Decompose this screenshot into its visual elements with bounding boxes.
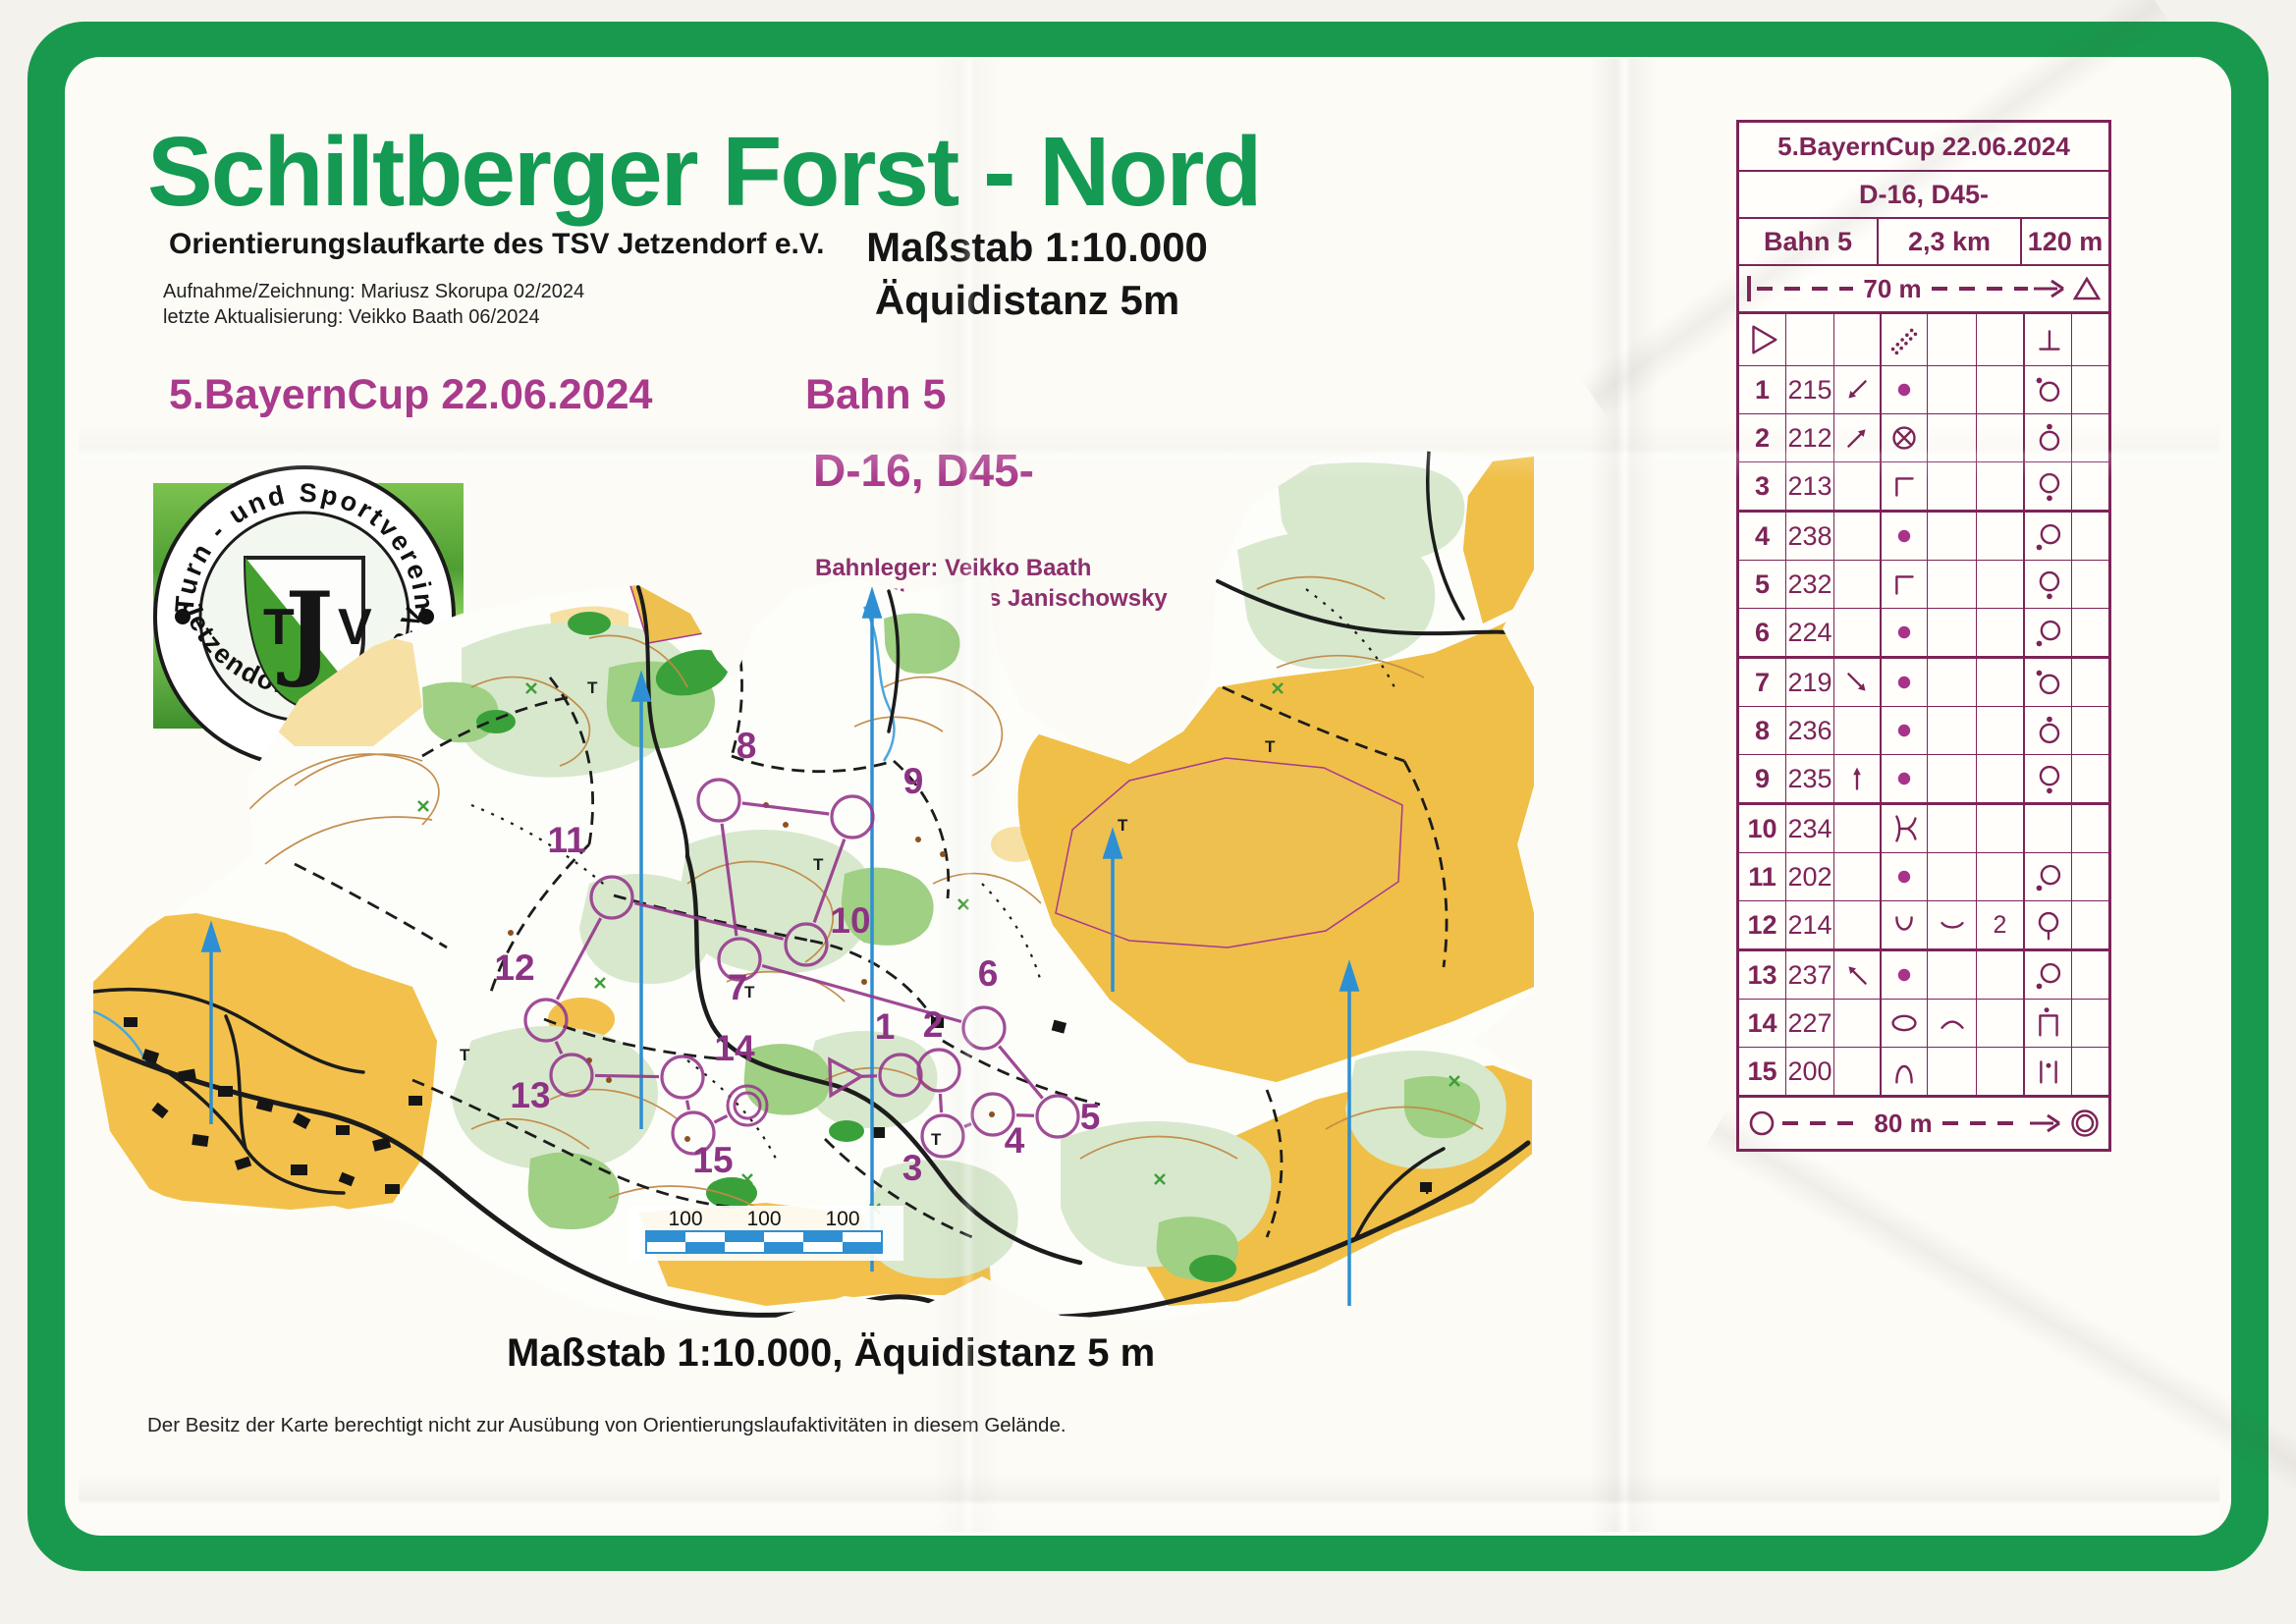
- scale-bar-cell: [685, 1231, 725, 1242]
- sheet-cell: [1834, 805, 1882, 852]
- arrow-n-icon: [1837, 759, 1877, 798]
- control-number: 6: [1755, 618, 1770, 648]
- control-number-label: 10: [830, 900, 870, 941]
- svg-text:T: T: [1265, 737, 1276, 756]
- sheet-cell: [1882, 853, 1928, 900]
- arrow-sw-icon: [1837, 370, 1877, 409]
- sheet-cell: [1977, 805, 2025, 852]
- dot-icon: [1885, 857, 1924, 896]
- scale-bar-cell: [685, 1242, 725, 1253]
- control-code: 213: [1787, 471, 1831, 502]
- control-code: 234: [1787, 814, 1831, 844]
- sheet-cell: [1977, 659, 2025, 706]
- control-description-sheet: 5.BayernCup 22.06.2024 D-16, D45- Bahn 5…: [1736, 120, 2111, 1152]
- control-code: 212: [1787, 423, 1831, 454]
- between-icon: [2029, 1052, 2068, 1091]
- scale-line1: Maßstab 1:10.000: [860, 224, 1214, 271]
- scale-bar-cell: [725, 1242, 764, 1253]
- sheet-cell: 213: [1786, 462, 1834, 510]
- control-number: 12: [1747, 910, 1777, 941]
- scale-bar-cell: [646, 1242, 685, 1253]
- finish-distance-row: 80 m: [1739, 1098, 2108, 1149]
- finish-distance-label: 80 m: [1870, 1109, 1936, 1139]
- control-rows: 1215221232134238523262247219823692351023…: [1739, 314, 2108, 1098]
- sheet-cell: [1928, 1000, 1977, 1047]
- control-row: 9235: [1739, 755, 2108, 805]
- control-number-label: 4: [1005, 1120, 1025, 1161]
- sheet-cell: [1977, 314, 2025, 365]
- sheet-cell: 10: [1739, 805, 1786, 852]
- sheet-cell: [2072, 853, 2108, 900]
- control-number: 8: [1755, 716, 1770, 746]
- course-leg-line: [687, 1101, 689, 1110]
- course-name: Bahn 5: [805, 371, 946, 419]
- sheet-cell: [1834, 707, 1882, 754]
- sheet-cell: [1834, 659, 1882, 706]
- sheet-cell: [2025, 414, 2072, 461]
- arc-icon: [1933, 1003, 1972, 1043]
- sheet-cell: [1882, 707, 1928, 754]
- control-code: 215: [1787, 375, 1831, 406]
- control-row: 7219: [1739, 659, 2108, 707]
- circle-dot-sw-icon: [2029, 857, 2068, 896]
- control-number: 9: [1755, 764, 1770, 794]
- control-row: 3213: [1739, 462, 2108, 513]
- sheet-cell: [1882, 609, 1928, 656]
- sheet-cell: [2025, 659, 2072, 706]
- sheet-cell: [1928, 366, 1977, 413]
- sheet-cell: [1834, 901, 1882, 948]
- scale-bar-label: 100: [668, 1208, 702, 1230]
- control-number-label: 14: [714, 1028, 755, 1068]
- arrow-ne-icon: [1837, 418, 1877, 458]
- dot-icon: [1885, 663, 1924, 702]
- sheet-cell: [2025, 462, 2072, 510]
- sheet-cell: 15: [1739, 1048, 1786, 1095]
- sheet-cell: 236: [1786, 707, 1834, 754]
- scale-bar-cell: [803, 1242, 843, 1253]
- control-number-label: 15: [692, 1140, 733, 1180]
- spur-icon: [1885, 809, 1924, 848]
- sheet-cell: [1928, 659, 1977, 706]
- last-control-circle-icon: [1747, 1109, 1777, 1138]
- finish-double-circle-icon: [2069, 1108, 2101, 1139]
- sheet-cell: 238: [1786, 513, 1834, 560]
- map-scale-bar: 100100100: [629, 1206, 903, 1261]
- control-row: 5232: [1739, 561, 2108, 609]
- sheet-cell: [1834, 314, 1882, 365]
- sheet-cell: 202: [1786, 853, 1834, 900]
- sheet-cell: [1882, 414, 1928, 461]
- svg-text:T: T: [1118, 816, 1128, 835]
- pi-dot-icon: [2029, 1003, 2068, 1043]
- sheet-cell: [2025, 901, 2072, 948]
- sheet-cell: [1882, 805, 1928, 852]
- sheet-cell: [2072, 805, 2108, 852]
- sheet-cell: [1834, 951, 1882, 999]
- sheet-cell: [1882, 951, 1928, 999]
- control-number: 14: [1747, 1008, 1777, 1039]
- distance-dashes: [1757, 287, 1853, 291]
- bend-icon: [1885, 565, 1924, 604]
- circle-dot-n-icon: [2029, 711, 2068, 750]
- circle-dot-sw-icon: [2029, 613, 2068, 652]
- perp-icon: [2029, 320, 2068, 359]
- sheet-cell: 235: [1786, 755, 1834, 802]
- sheet-cell: [1928, 853, 1977, 900]
- orienteering-map: TTT TTT TT: [88, 442, 1542, 1335]
- scale-bar-cell: [725, 1231, 764, 1242]
- sheet-cell: [1882, 901, 1928, 948]
- arrow-right-icon: [2030, 1111, 2063, 1135]
- sheet-cell: [2025, 805, 2072, 852]
- control-row: 11202: [1739, 853, 2108, 901]
- sheet-cell: [2072, 513, 2108, 560]
- control-row: 8236: [1739, 707, 2108, 755]
- map-subtitle: Orientierungslaufkarte des TSV Jetzendor…: [169, 228, 824, 261]
- scale-bar-label: 100: [746, 1208, 781, 1230]
- sheet-event-title: 5.BayernCup 22.06.2024: [1739, 123, 2108, 172]
- control-row: 4238: [1739, 513, 2108, 561]
- sheet-cell: [1834, 853, 1882, 900]
- control-row: 15200: [1739, 1048, 2108, 1098]
- control-code: 224: [1787, 618, 1831, 648]
- bend-icon: [1885, 466, 1924, 506]
- bottom-scale-text: Maßstab 1:10.000, Äquidistanz 5 m: [507, 1331, 1155, 1376]
- sheet-cell: [2072, 314, 2108, 365]
- sheet-cell: [2025, 314, 2072, 365]
- course-leg-line: [1016, 1115, 1034, 1116]
- sheet-cell: [1882, 1048, 1928, 1095]
- page-title: Schiltberger Forst - Nord: [147, 116, 1260, 229]
- sheet-cell: [2025, 951, 2072, 999]
- sheet-classes: D-16, D45-: [1739, 172, 2108, 219]
- distance-tick: [1747, 276, 1751, 301]
- sheet-cell: [1977, 414, 2025, 461]
- sheet-cell: [1739, 314, 1786, 365]
- control-code: 214: [1787, 910, 1831, 941]
- sheet-cell: [2072, 951, 2108, 999]
- circle-dot-s-icon: [2029, 466, 2068, 506]
- sheet-cell: [2072, 609, 2108, 656]
- start-distance-label: 70 m: [1859, 274, 1925, 304]
- sheet-cell: 2: [1977, 901, 2025, 948]
- sheet-cell: 12: [1739, 901, 1786, 948]
- sheet-course-info: Bahn 5 2,3 km 120 m: [1739, 219, 2108, 266]
- sheet-cell: [2025, 1000, 2072, 1047]
- control-row: 122142: [1739, 901, 2108, 951]
- control-number-label: 8: [737, 726, 757, 766]
- svg-text:T: T: [460, 1046, 470, 1064]
- start-distance-row: 70 m: [1739, 266, 2108, 314]
- sheet-cell: [1882, 366, 1928, 413]
- sheet-cell: 227: [1786, 1000, 1834, 1047]
- arrow-se-icon: [1837, 663, 1877, 702]
- sheet-cell: [1928, 951, 1977, 999]
- control-row: 2212: [1739, 414, 2108, 462]
- sheet-cell: [1928, 707, 1977, 754]
- sheet-cell: [2072, 366, 2108, 413]
- scale-bar-cell: [843, 1242, 882, 1253]
- dot-icon: [1885, 955, 1924, 995]
- sheet-cell: 1: [1739, 366, 1786, 413]
- sheet-cell: 4: [1739, 513, 1786, 560]
- control-row: 14227: [1739, 1000, 2108, 1048]
- dot-icon: [1885, 370, 1924, 409]
- control-code: 219: [1787, 668, 1831, 698]
- sheet-cell: [1834, 561, 1882, 608]
- sheet-cell: [1882, 513, 1928, 560]
- event-title: 5.BayernCup 22.06.2024: [169, 371, 652, 419]
- sheet-cell: [1928, 561, 1977, 608]
- control-number-label: 3: [902, 1148, 923, 1188]
- control-number-label: 1: [875, 1006, 896, 1047]
- sheet-cell: [1882, 755, 1928, 802]
- control-number-label: 6: [978, 953, 999, 994]
- sheet-cell: [1834, 366, 1882, 413]
- sheet-cell: [1882, 659, 1928, 706]
- sheet-cell: [1977, 513, 2025, 560]
- sheet-cell: [2025, 1048, 2072, 1095]
- sheet-cell: [1928, 609, 1977, 656]
- sheet-cell: 11: [1739, 853, 1786, 900]
- circle-dot-sw-icon: [2029, 955, 2068, 995]
- course-leg-line: [940, 1094, 941, 1112]
- sheet-cell: [2072, 462, 2108, 510]
- dot-icon: [1885, 711, 1924, 750]
- u-shape-icon: [1885, 905, 1924, 945]
- sheet-cell: [1834, 1000, 1882, 1047]
- circle-dot-sw-icon: [2029, 516, 2068, 556]
- scale-bar-cell: [764, 1242, 803, 1253]
- sheet-cell: 215: [1786, 366, 1834, 413]
- control-code: 202: [1787, 862, 1831, 893]
- sheet-cell: [2025, 513, 2072, 560]
- control-row: 13237: [1739, 951, 2108, 1000]
- sheet-cell: [1928, 462, 1977, 510]
- control-number: 13: [1747, 960, 1777, 991]
- control-number: 1: [1755, 375, 1770, 406]
- control-code: 237: [1787, 960, 1831, 991]
- control-row: 10234: [1739, 805, 2108, 853]
- shallow-icon: [1933, 905, 1972, 945]
- sheet-cell: 224: [1786, 609, 1834, 656]
- control-code: 235: [1787, 764, 1831, 794]
- distance-dashes: [1942, 1121, 2024, 1125]
- control-number: 4: [1755, 521, 1770, 552]
- sheet-cell: [1928, 755, 1977, 802]
- circle-stem-icon: [2029, 905, 2068, 945]
- sheet-cell: [1882, 1000, 1928, 1047]
- svg-text:T: T: [587, 678, 598, 697]
- control-number-label: 5: [1080, 1097, 1101, 1137]
- sheet-cell: [2072, 659, 2108, 706]
- control-code: 238: [1787, 521, 1831, 552]
- control-number-label: 9: [903, 761, 924, 801]
- scale-bar-label: 100: [825, 1208, 859, 1230]
- sheet-cell: [1977, 1048, 2025, 1095]
- sheet-cell: 219: [1786, 659, 1834, 706]
- circle-x-icon: [1885, 418, 1924, 458]
- sheet-cell: [1977, 462, 2025, 510]
- sheet-cell: 200: [1786, 1048, 1834, 1095]
- scale-bar-cell: [803, 1231, 843, 1242]
- ride-icon: [1885, 320, 1924, 359]
- control-code: 227: [1787, 1008, 1831, 1039]
- svg-text:T: T: [813, 855, 824, 874]
- start-row: [1739, 314, 2108, 366]
- start-triangle-icon: [1743, 320, 1782, 359]
- sheet-cell: 232: [1786, 561, 1834, 608]
- sheet-cell: [2072, 755, 2108, 802]
- sheet-cell: 5: [1739, 561, 1786, 608]
- sheet-cell: [1834, 513, 1882, 560]
- sheet-cell: [1882, 561, 1928, 608]
- sheet-cell: [1977, 1000, 2025, 1047]
- sheet-cell: [1882, 462, 1928, 510]
- course-leg-line: [595, 1075, 659, 1076]
- control-number-label: 13: [510, 1075, 550, 1115]
- control-number: 5: [1755, 569, 1770, 600]
- sheet-cell: 9: [1739, 755, 1786, 802]
- disclaimer-text: Der Besitz der Karte berechtigt nicht zu…: [147, 1414, 1066, 1437]
- sheet-cell: [1834, 1048, 1882, 1095]
- control-number: 3: [1755, 471, 1770, 502]
- sheet-cell: 14: [1739, 1000, 1786, 1047]
- arrow-nw-icon: [1837, 955, 1877, 995]
- sheet-cell: [1977, 366, 2025, 413]
- sheet-cell: [2025, 755, 2072, 802]
- sheet-cell: [2025, 366, 2072, 413]
- sheet-cell: [1977, 609, 2025, 656]
- sheet-course-length: 2,3 km: [1879, 219, 2022, 264]
- sheet-cell: [2025, 707, 2072, 754]
- credit-drawing: Aufnahme/Zeichnung: Mariusz Skorupa 02/2…: [163, 281, 584, 303]
- sheet-cell: [1834, 755, 1882, 802]
- control-number-label: 2: [923, 1004, 944, 1045]
- sheet-cell: [2072, 707, 2108, 754]
- sheet-cell: [1834, 609, 1882, 656]
- sheet-cell: [1928, 414, 1977, 461]
- control-code: 200: [1787, 1056, 1831, 1087]
- circle-dot-nw-icon: [2029, 370, 2068, 409]
- sheet-cell: 214: [1786, 901, 1834, 948]
- sheet-cell: [1977, 755, 2025, 802]
- sheet-cell: [1834, 414, 1882, 461]
- circle-dot-s-icon: [2029, 759, 2068, 798]
- sheet-cell: 237: [1786, 951, 1834, 999]
- sheet-cell: [2072, 1048, 2108, 1095]
- dot-icon: [1885, 516, 1924, 556]
- sheet-cell: [2072, 901, 2108, 948]
- map-terrain: TTT TTT TT: [88, 442, 1542, 1335]
- control-number: 10: [1747, 814, 1777, 844]
- control-row: 6224: [1739, 609, 2108, 659]
- sheet-cell: [2072, 414, 2108, 461]
- sheet-cell: [2072, 1000, 2108, 1047]
- sheet-cell: [1977, 561, 2025, 608]
- control-code: 236: [1787, 716, 1831, 746]
- sheet-course-climb: 120 m: [2022, 219, 2108, 264]
- sheet-cell: 6: [1739, 609, 1786, 656]
- sheet-cell: [1977, 853, 2025, 900]
- control-code: 232: [1787, 569, 1831, 600]
- circle-dot-nw-icon: [2029, 663, 2068, 702]
- scale-line2: Äquidistanz 5m: [860, 277, 1194, 324]
- control-number-label: 11: [547, 820, 585, 860]
- sheet-cell: 3: [1739, 462, 1786, 510]
- sheet-cell: [1928, 1048, 1977, 1095]
- sheet-cell: [2025, 853, 2072, 900]
- sheet-cell: 8: [1739, 707, 1786, 754]
- hill-icon: [1885, 1052, 1924, 1091]
- control-number-label: 12: [494, 947, 534, 988]
- control-dimension: 2: [1994, 911, 2007, 940]
- sheet-cell: 212: [1786, 414, 1834, 461]
- distance-dashes: [1932, 287, 2028, 291]
- dot-icon: [1885, 759, 1924, 798]
- sheet-cell: [1977, 707, 2025, 754]
- sheet-cell: [1928, 513, 1977, 560]
- distance-dashes: [1782, 1121, 1864, 1125]
- sheet-cell: [1928, 314, 1977, 365]
- sheet-cell: 234: [1786, 805, 1834, 852]
- scanned-map-page: Schiltberger Forst - Nord Orientierungsl…: [0, 0, 2296, 1624]
- sheet-cell: [1928, 805, 1977, 852]
- credit-update: letzte Aktualisierung: Veikko Baath 06/2…: [163, 306, 540, 329]
- control-number: 2: [1755, 423, 1770, 454]
- control-number: 7: [1755, 668, 1770, 698]
- sheet-cell: [1882, 314, 1928, 365]
- sheet-cell: 7: [1739, 659, 1786, 706]
- oval-icon: [1885, 1003, 1924, 1043]
- arrow-right-icon: [2034, 277, 2067, 300]
- sheet-cell: [2072, 561, 2108, 608]
- sheet-cell: [1786, 314, 1834, 365]
- control-row: 1215: [1739, 366, 2108, 414]
- control-number: 11: [1748, 862, 1777, 893]
- sheet-cell: 2: [1739, 414, 1786, 461]
- sheet-cell: [1928, 901, 1977, 948]
- sheet-cell: [2025, 561, 2072, 608]
- circle-dot-n-icon: [2029, 418, 2068, 458]
- scale-bar-cell: [843, 1231, 882, 1242]
- svg-text:T: T: [931, 1130, 942, 1149]
- start-triangle-icon: [2073, 276, 2101, 301]
- sheet-cell: [2025, 609, 2072, 656]
- circle-dot-s-icon: [2029, 565, 2068, 604]
- sheet-cell: [1977, 951, 2025, 999]
- sheet-cell: [1834, 462, 1882, 510]
- control-number-label: 7: [728, 967, 748, 1007]
- sheet-course-name: Bahn 5: [1739, 219, 1879, 264]
- dot-icon: [1885, 613, 1924, 652]
- control-number: 15: [1747, 1056, 1777, 1087]
- scale-bar-cell: [764, 1231, 803, 1242]
- scale-bar-cell: [646, 1231, 685, 1242]
- sheet-cell: 13: [1739, 951, 1786, 999]
